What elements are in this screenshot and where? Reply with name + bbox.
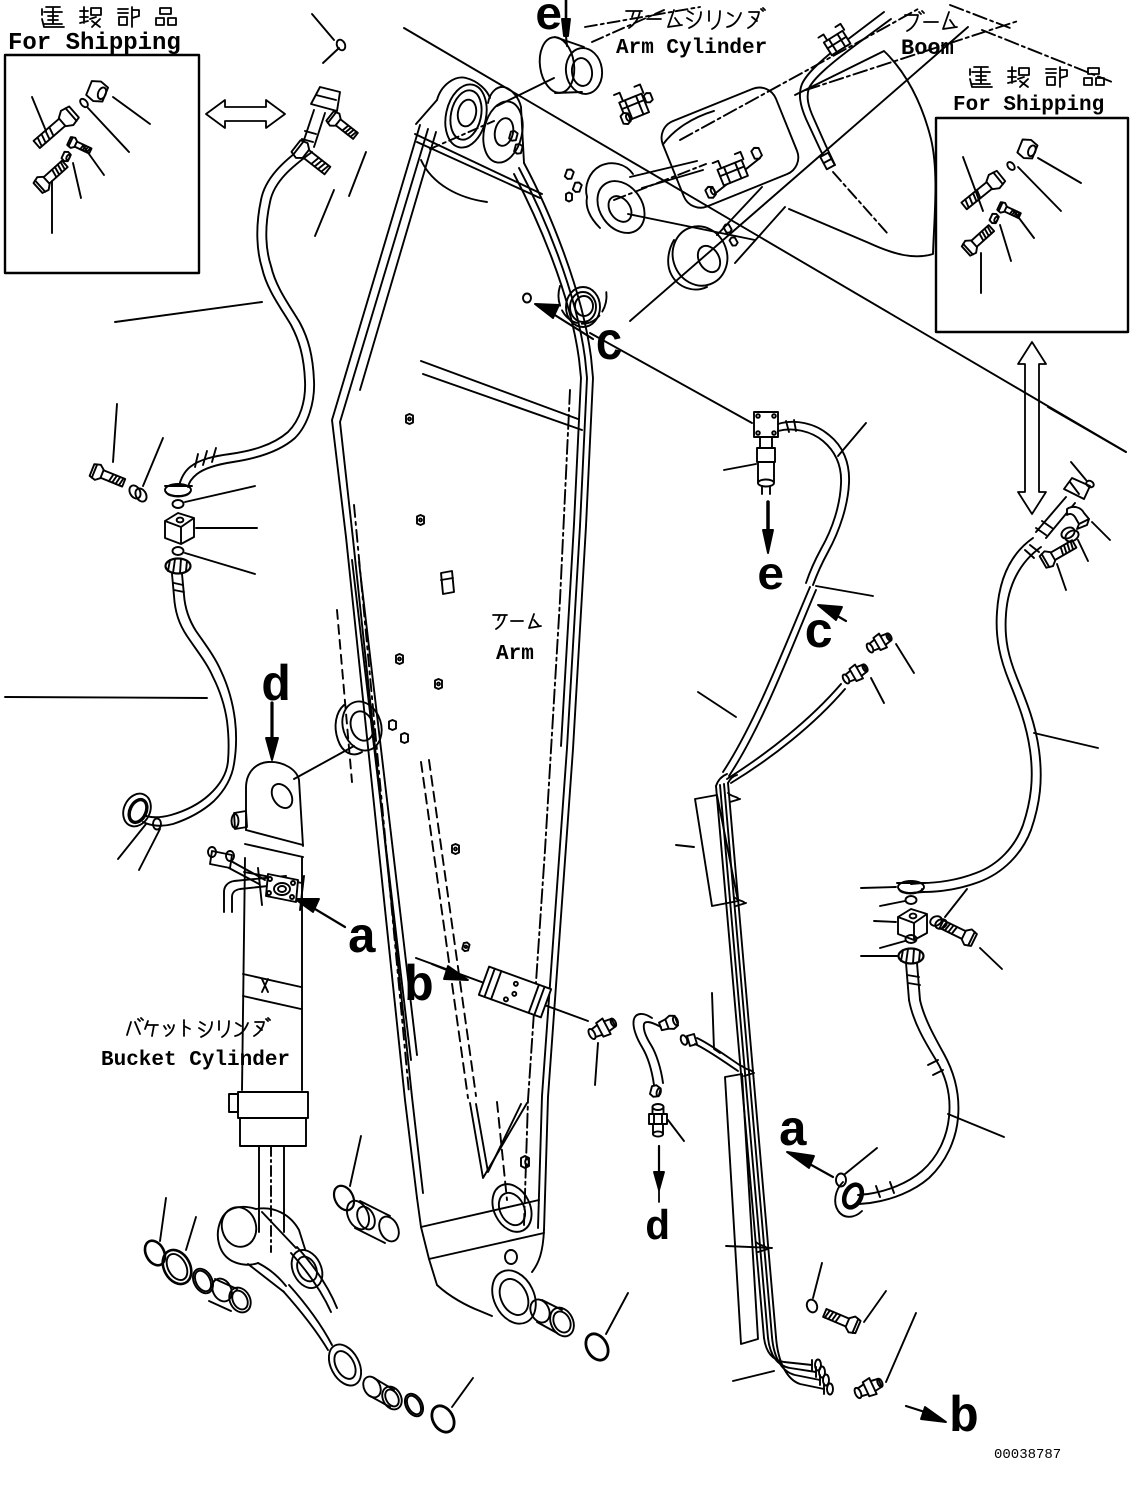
svg-text:For Shipping: For Shipping <box>8 30 181 57</box>
svg-text:e: e <box>757 551 785 603</box>
svg-text:For Shipping: For Shipping <box>953 94 1104 117</box>
svg-text:Arm: Arm <box>496 643 534 666</box>
svg-text:e: e <box>535 0 563 43</box>
svg-text:b: b <box>949 1390 979 1447</box>
svg-text:00038787: 00038787 <box>994 1447 1061 1463</box>
svg-text:a: a <box>347 911 377 968</box>
svg-text:d: d <box>645 1204 670 1252</box>
svg-text:Arm Cylinder: Arm Cylinder <box>616 37 767 60</box>
svg-text:d: d <box>261 659 291 716</box>
svg-text:Bucket Cylinder: Bucket Cylinder <box>101 1049 290 1072</box>
